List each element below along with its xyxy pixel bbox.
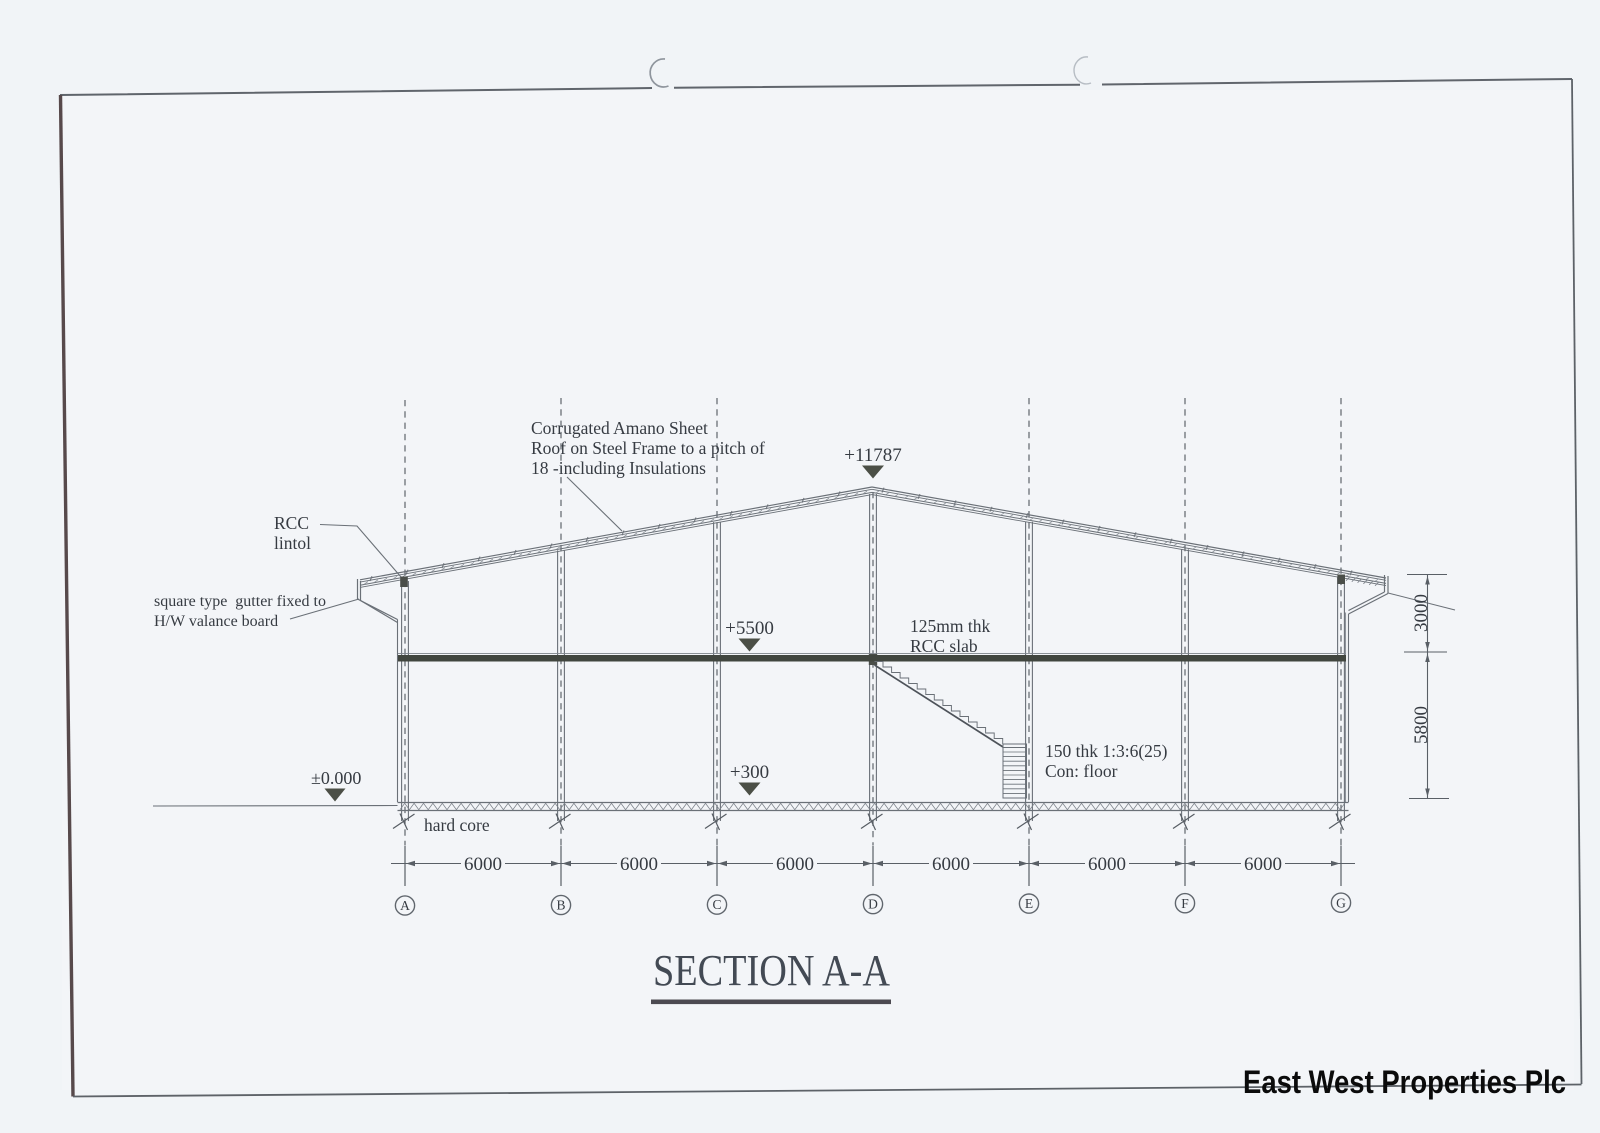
svg-text:B: B (556, 898, 565, 913)
svg-text:SECTION A-A: SECTION A-A (653, 946, 890, 995)
svg-text:Con: floor: Con: floor (1045, 761, 1118, 781)
svg-text:6000: 6000 (1088, 854, 1126, 875)
svg-text:Roof on Steel Frame to a pitch: Roof on Steel Frame to a pitch of (531, 438, 765, 458)
svg-text:6000: 6000 (1244, 854, 1282, 875)
svg-text:H/W valance board: H/W valance board (154, 613, 278, 630)
svg-text:D: D (868, 897, 878, 912)
svg-text:E: E (1025, 896, 1033, 911)
svg-text:East West Properties Plc: East West Properties Plc (1243, 1064, 1566, 1100)
svg-text:F: F (1181, 896, 1189, 911)
svg-text:Corrugated Amano Sheet: Corrugated Amano Sheet (531, 418, 708, 438)
svg-text:6000: 6000 (464, 854, 502, 875)
svg-text:+11787: +11787 (844, 445, 902, 466)
svg-text:5800: 5800 (1411, 706, 1432, 744)
svg-text:A: A (400, 898, 410, 913)
svg-text:±0.000: ±0.000 (311, 768, 361, 788)
svg-text:RCC: RCC (274, 513, 309, 533)
svg-text:hard core: hard core (424, 815, 490, 835)
svg-text:G: G (1336, 895, 1346, 910)
svg-text:+300: +300 (730, 762, 769, 783)
svg-text:18 -including Insulations: 18 -including Insulations (531, 458, 706, 478)
svg-text:3000: 3000 (1411, 594, 1432, 632)
svg-text:lintol: lintol (274, 533, 311, 553)
svg-text:RCC slab: RCC slab (910, 636, 978, 656)
svg-text:6000: 6000 (776, 854, 814, 875)
svg-text:+5500: +5500 (725, 618, 774, 639)
svg-text:C: C (712, 897, 721, 912)
svg-text:6000: 6000 (620, 854, 658, 875)
svg-text:150 thk 1:3:6(25): 150 thk 1:3:6(25) (1045, 741, 1168, 761)
svg-text:125mm thk: 125mm thk (910, 616, 990, 636)
svg-text:square type gutter fixed to: square type gutter fixed to (154, 593, 326, 610)
svg-text:6000: 6000 (932, 854, 970, 875)
